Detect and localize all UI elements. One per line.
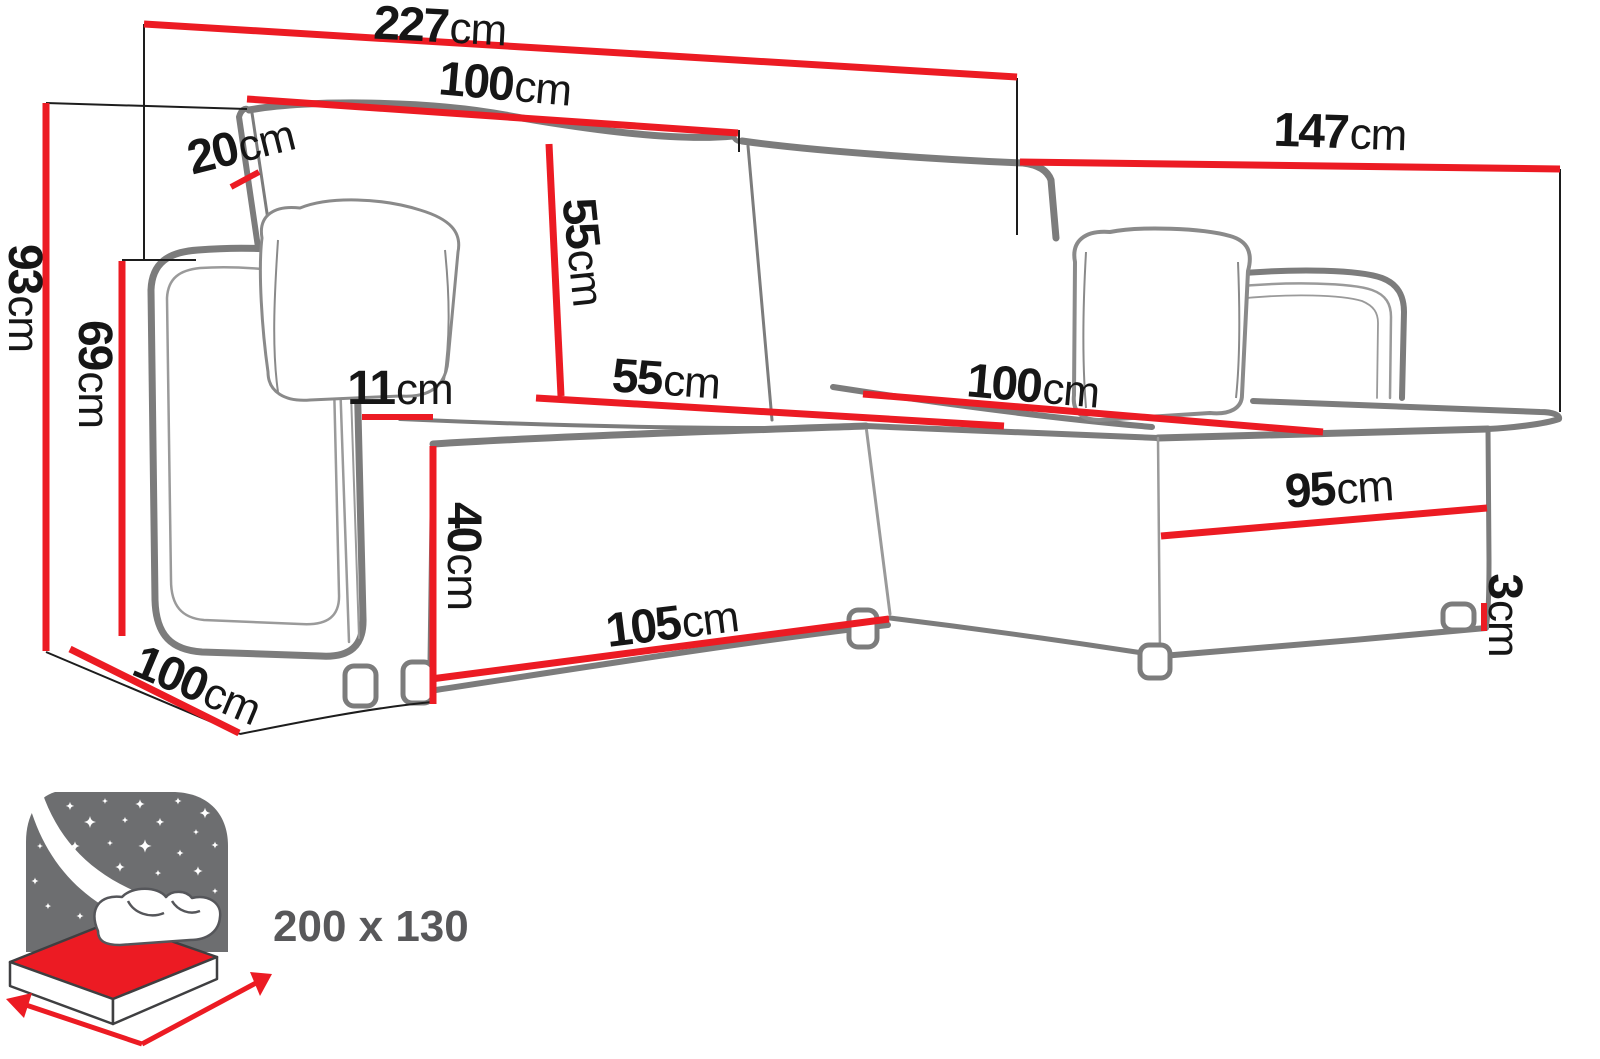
dimension-unit: cm (69, 371, 118, 428)
backrest-cushion-seam (748, 146, 772, 420)
dim-line-chaise-length-147 (1020, 162, 1560, 169)
dimension-unit: cm (396, 365, 453, 414)
dimension-unit: cm (1041, 364, 1102, 418)
dimension-unit: cm (1335, 461, 1395, 514)
sleeping-area-size-label: 200 x 130 (273, 905, 469, 949)
dimension-unit: cm (558, 247, 613, 308)
leg-chaise-left (1140, 645, 1170, 678)
right-pillow (1074, 229, 1250, 420)
dimension-label-chaise-front-length: 95cm (1283, 461, 1394, 516)
dimension-value: 69 (68, 320, 121, 369)
leg-armrest (345, 666, 376, 706)
dimension-label-leg-height: 3cm (1480, 573, 1528, 656)
dimension-value: 100 (965, 354, 1043, 413)
seat-corner-seam (866, 426, 890, 614)
chaise-left-seam (1158, 438, 1160, 656)
dimension-label-total-height: 93cm (0, 244, 48, 352)
sleeping-area-icon (6, 792, 272, 1044)
dimension-unit: cm (662, 356, 722, 409)
dimension-value: 40 (437, 502, 490, 551)
dimension-unit: cm (513, 62, 574, 116)
dimension-label-seat-depth: 55cm (610, 352, 721, 407)
dimension-value: 93 (0, 244, 51, 293)
dimension-value: 147 (1273, 104, 1349, 160)
right-armrest-seam-2 (1237, 295, 1378, 398)
dimension-value: 11 (347, 362, 394, 415)
dimension-label-total-width: 227cm (372, 0, 507, 54)
chaise-left-bottom-edge (890, 618, 1162, 656)
dim-line-total-width-227 (144, 24, 1017, 77)
chaise-far-edge (1253, 401, 1559, 429)
dimension-unit: cm (448, 4, 507, 56)
leg-seat-left (403, 662, 433, 703)
dimension-label-backrest-width: 100cm (437, 55, 573, 114)
ref-floor-line (240, 702, 432, 734)
dimension-label-armrest-height: 69cm (70, 320, 118, 428)
dimension-unit: cm (438, 553, 487, 610)
leg-chaise-right (1443, 604, 1474, 630)
ref-top-height-tick (46, 103, 247, 109)
dimension-value: 3 (1478, 573, 1531, 598)
dimension-value: 55 (551, 195, 609, 250)
backrest-right-cushion-top (742, 141, 1056, 238)
dimension-label-seat-height: 40cm (439, 502, 487, 610)
dimension-value: 227 (372, 0, 449, 53)
dimension-unit: cm (0, 295, 48, 352)
dimension-unit: cm (1349, 109, 1407, 160)
dimension-value: 100 (437, 52, 515, 111)
chaise-front-bottom-edge (1162, 628, 1486, 656)
dimension-value: 105 (603, 596, 683, 658)
sofa-dimension-diagram: 227cm 100cm 20cm 147cm 93cm 69cm 55cm 55… (0, 0, 1600, 1059)
leg-seat-right (849, 610, 877, 647)
dimension-label-chaise-top-width: 100cm (965, 357, 1101, 416)
dimension-unit: cm (1479, 600, 1528, 657)
dimension-label-back-cushion-height: 55cm (553, 196, 612, 308)
dimension-value: 95 (1283, 462, 1336, 518)
icon-pillows (94, 889, 220, 945)
chaise-inner-corner-edge (866, 426, 1158, 438)
dimension-unit: cm (679, 592, 741, 648)
dimension-value: 55 (610, 349, 663, 405)
dimension-label-armrest-width: 11cm (347, 365, 452, 413)
dimension-label-chaise-length: 147cm (1273, 107, 1407, 160)
right-armrest-seam-1 (1230, 283, 1391, 398)
